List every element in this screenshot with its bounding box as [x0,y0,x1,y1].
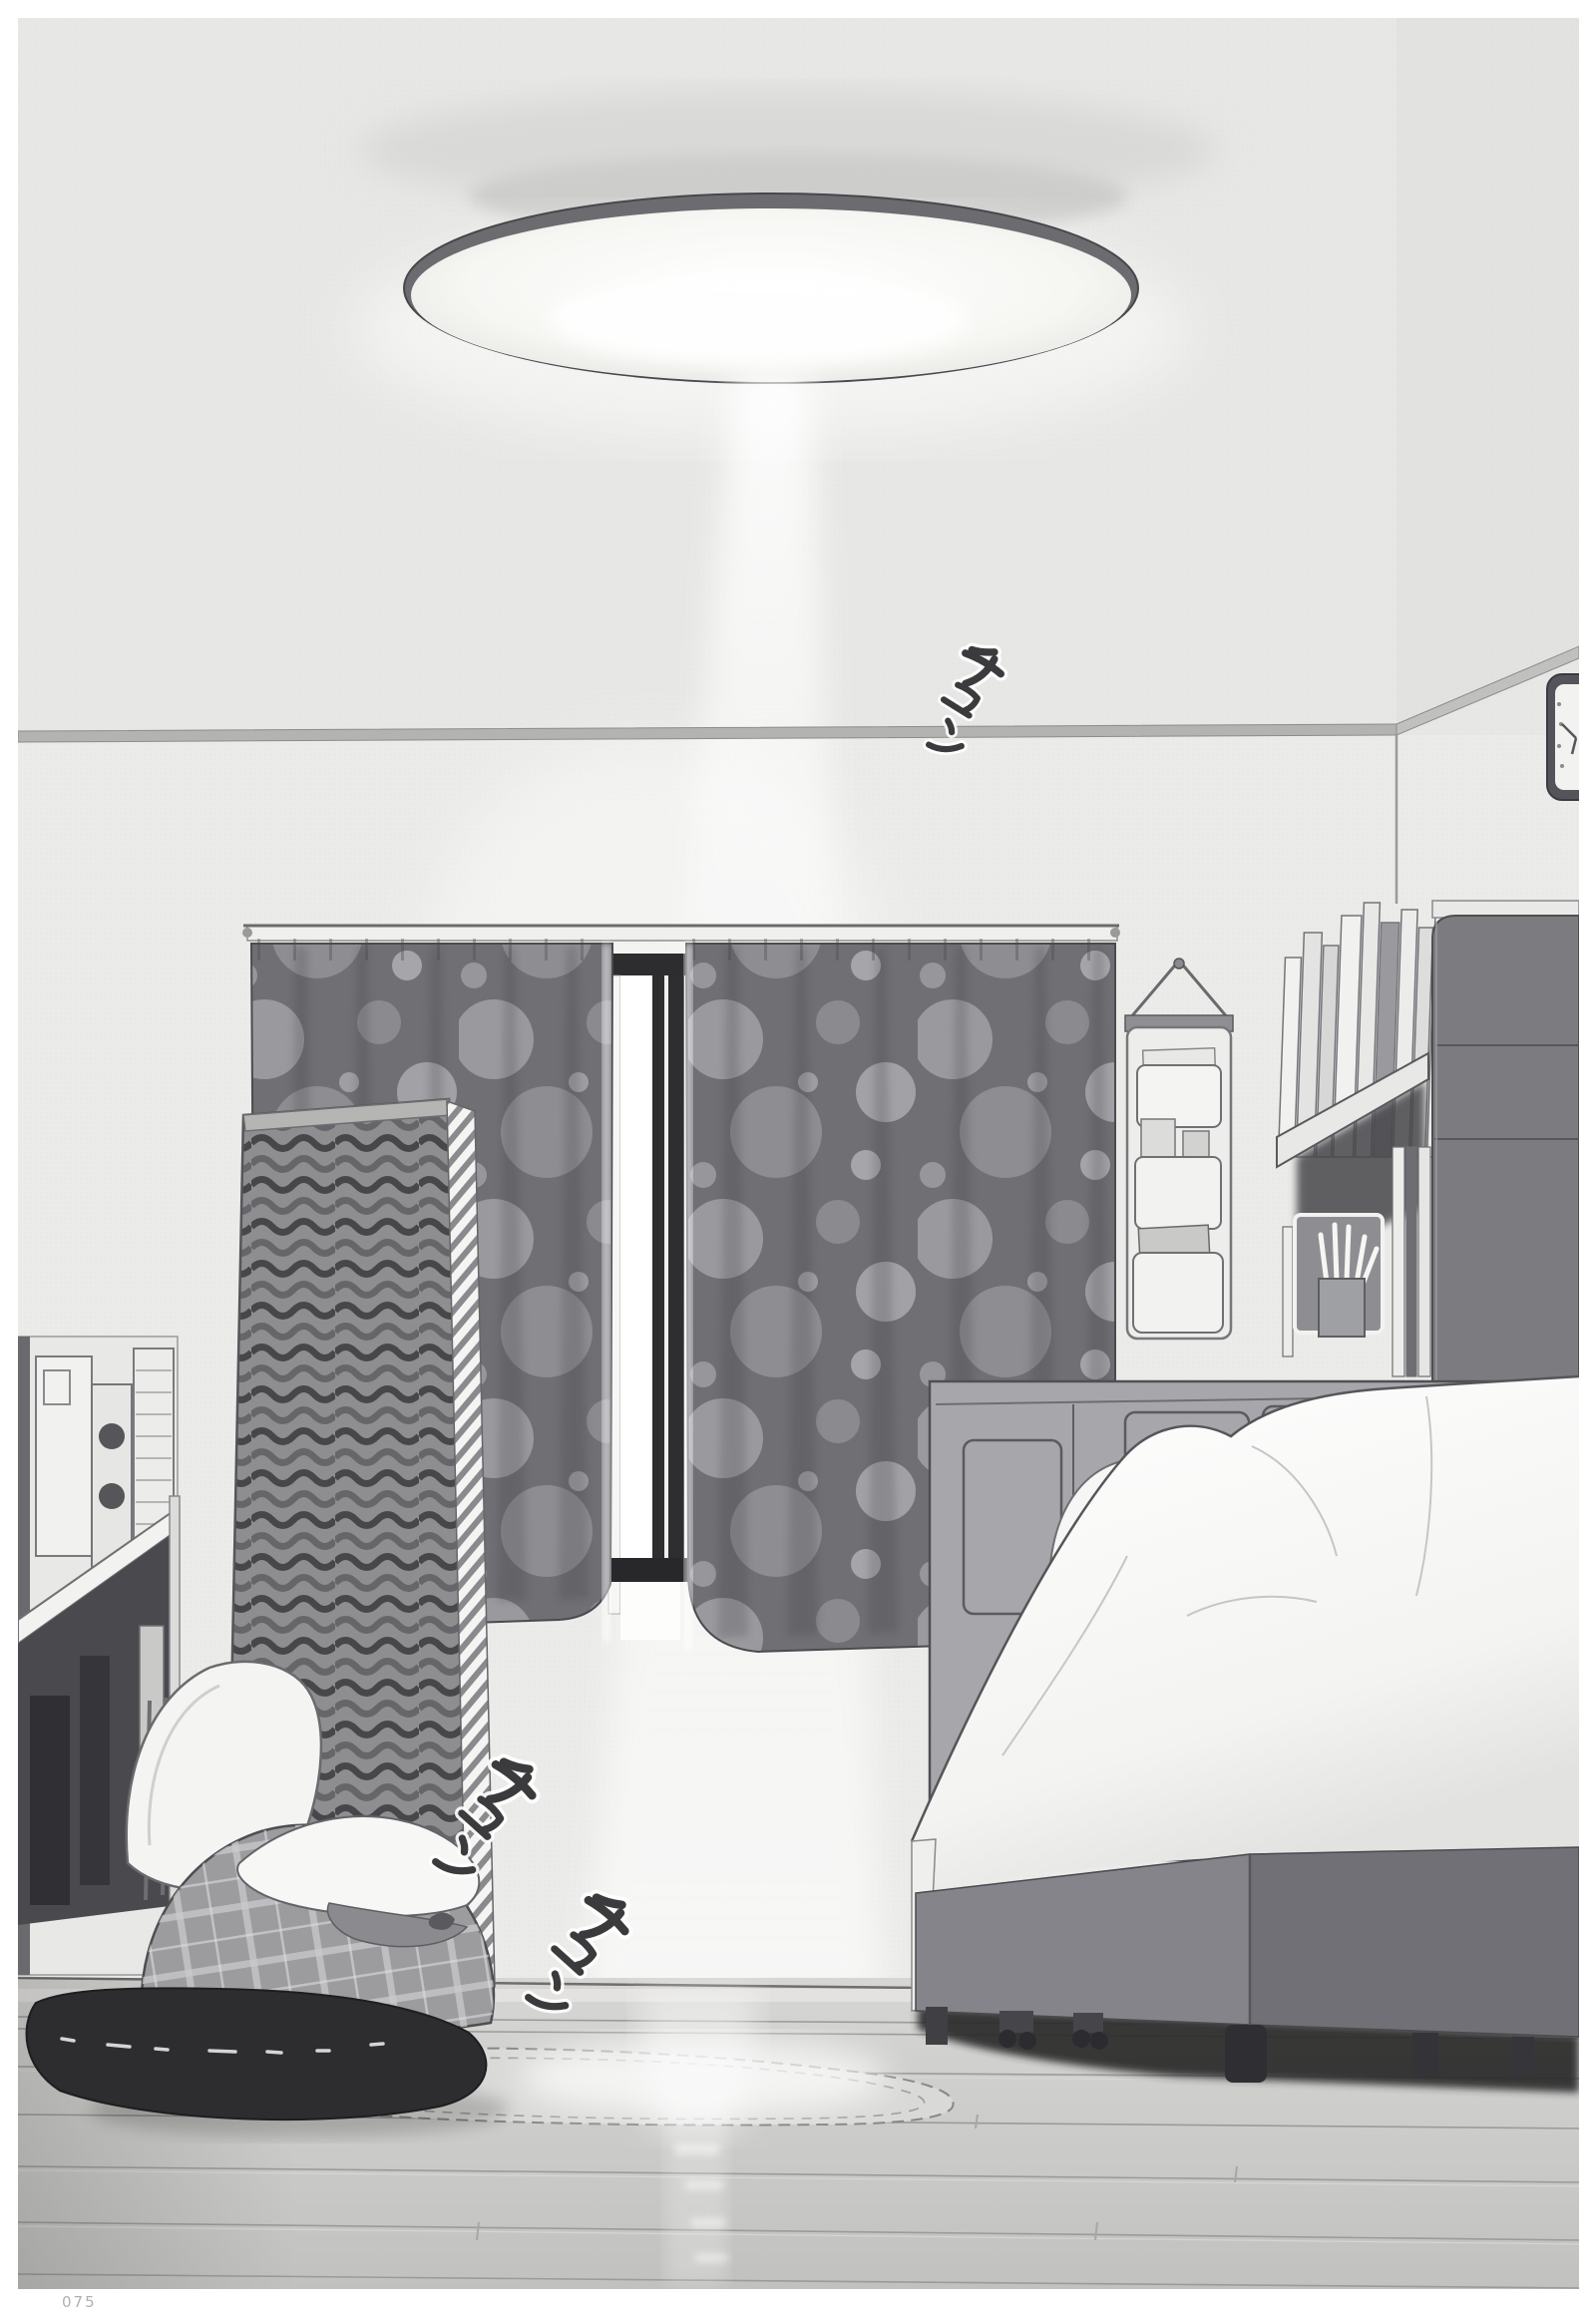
window-lower-glow [620,1582,680,1640]
window [608,954,690,1640]
pocket-2 [1135,1157,1221,1229]
curtain-rail [242,926,1120,941]
hook-pin [1174,959,1184,968]
window-light-gap [620,975,652,1622]
artwork-canvas: チュン チュン チュン [0,0,1596,2315]
cabinet-panel [1432,916,1579,1456]
window-rail [608,1558,690,1582]
gap-fringe-right [684,944,692,1652]
pocket-1 [1137,1065,1221,1127]
page-number: 075 [62,2293,97,2311]
bed-base-side [1250,1847,1579,2037]
lamp-hotspot [549,274,968,364]
gap-fringe-left [602,944,610,1642]
pocket-3 [1133,1253,1223,1333]
pocket-paper [1141,1119,1175,1161]
manga-page: チュン チュン チュン 075 [0,0,1596,2315]
sash-divider [664,975,668,1558]
wall-organizer [1125,959,1233,1339]
artwork: チュン チュン チュン [0,0,1596,2289]
bed [912,1376,1579,2093]
window-lintel [608,954,690,975]
